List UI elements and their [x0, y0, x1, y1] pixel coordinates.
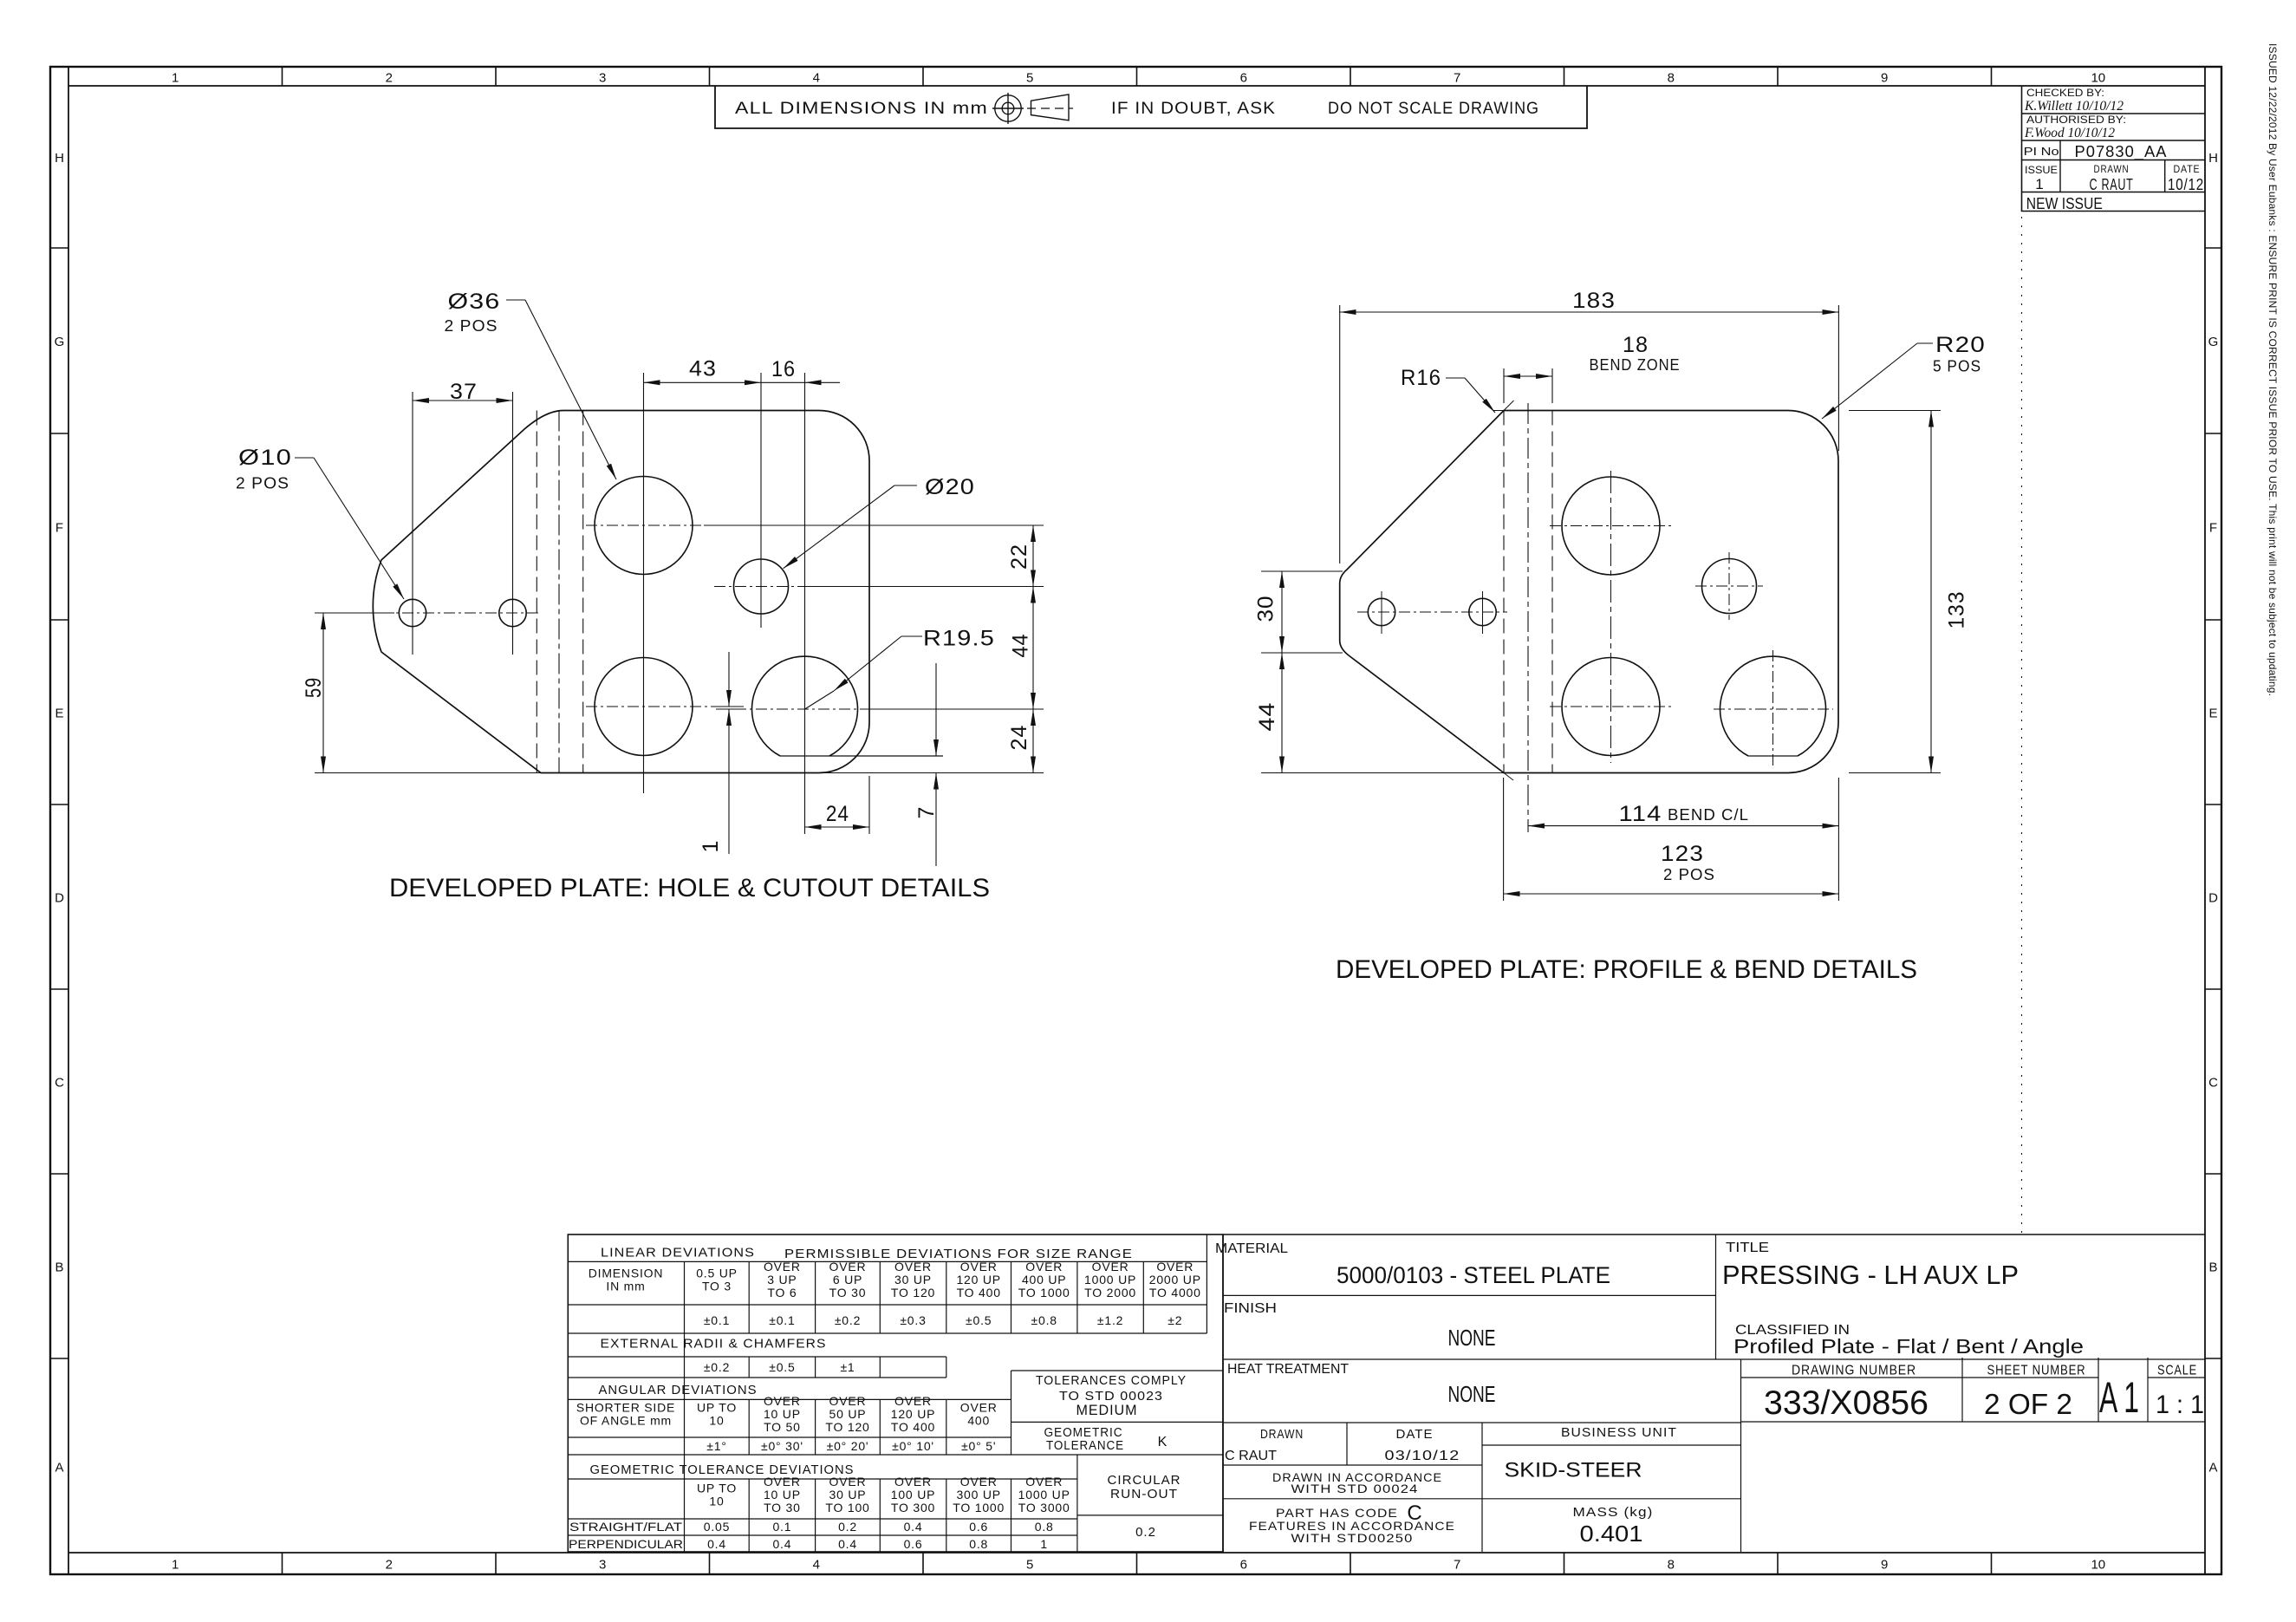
svg-text:H: H [55, 151, 64, 166]
svg-text:OVER: OVER [960, 1401, 998, 1415]
svg-text:NONE: NONE [1448, 1325, 1496, 1351]
svg-text:0.1: 0.1 [772, 1520, 791, 1534]
svg-text:CIRCULAR: CIRCULAR [1108, 1473, 1181, 1488]
svg-text:TOLERANCES COMPLY: TOLERANCES COMPLY [1036, 1373, 1187, 1388]
svg-text:0.4: 0.4 [772, 1537, 791, 1551]
svg-text:120 UP: 120 UP [891, 1407, 936, 1421]
svg-text:0.8: 0.8 [969, 1537, 988, 1551]
svg-text:G: G [2208, 335, 2219, 349]
svg-text:120 UP: 120 UP [956, 1273, 1001, 1287]
svg-text:SKID-STEER: SKID-STEER [1505, 1459, 1642, 1482]
svg-text:±0° 10': ±0° 10' [892, 1439, 934, 1453]
svg-text:D: D [2208, 891, 2218, 906]
svg-text:24: 24 [826, 802, 849, 826]
svg-text:133: 133 [1945, 591, 1969, 629]
svg-text:TO 120: TO 120 [891, 1286, 935, 1300]
svg-text:PERPENDICULAR: PERPENDICULAR [569, 1537, 683, 1551]
svg-text:10: 10 [709, 1495, 724, 1508]
svg-text:DATE: DATE [1396, 1427, 1434, 1442]
svg-text:TO 2000: TO 2000 [1084, 1286, 1136, 1300]
svg-text:PI No: PI No [2024, 145, 2059, 158]
svg-text:6: 6 [1240, 71, 1247, 86]
svg-text:6 UP: 6 UP [833, 1273, 862, 1287]
svg-text:LINEAR DEVIATIONS: LINEAR DEVIATIONS [601, 1246, 755, 1260]
svg-text:2 POS: 2 POS [445, 317, 498, 335]
svg-text:333/X0856: 333/X0856 [1764, 1384, 1929, 1422]
svg-text:TO 1000: TO 1000 [1018, 1286, 1070, 1300]
svg-text:IN mm: IN mm [606, 1280, 645, 1293]
svg-text:WITH STD 00024: WITH STD 00024 [1291, 1482, 1419, 1495]
svg-text:0.2: 0.2 [838, 1520, 857, 1534]
svg-text:18: 18 [1623, 333, 1649, 357]
svg-text:±0.3: ±0.3 [900, 1313, 926, 1327]
svg-text:OVER: OVER [829, 1394, 867, 1408]
svg-text:3 UP: 3 UP [767, 1273, 797, 1287]
svg-text:SHEET NUMBER: SHEET NUMBER [1987, 1364, 2086, 1378]
svg-text:7: 7 [1454, 71, 1460, 86]
svg-text:100 UP: 100 UP [891, 1488, 936, 1501]
svg-text:10 UP: 10 UP [764, 1488, 801, 1501]
svg-text:OF ANGLE mm: OF ANGLE mm [580, 1414, 672, 1428]
svg-text:3: 3 [599, 71, 606, 86]
svg-text:±0.8: ±0.8 [1031, 1313, 1057, 1327]
svg-text:CHECKED BY:: CHECKED BY: [2026, 87, 2104, 99]
svg-text:NEW ISSUE: NEW ISSUE [2026, 195, 2103, 212]
svg-text:TO 400: TO 400 [957, 1286, 1001, 1300]
svg-text:C: C [55, 1076, 64, 1091]
svg-text:Ø10: Ø10 [238, 446, 292, 470]
svg-text:D: D [55, 891, 64, 906]
svg-text:30: 30 [1254, 596, 1278, 622]
svg-text:5 POS: 5 POS [1933, 358, 1981, 375]
svg-text:SHORTER SIDE: SHORTER SIDE [576, 1401, 675, 1415]
svg-text:1: 1 [1040, 1537, 1048, 1551]
svg-text:4: 4 [813, 1558, 820, 1573]
svg-text:400: 400 [967, 1414, 990, 1428]
svg-text:A: A [2208, 1461, 2217, 1475]
svg-text:7: 7 [914, 806, 939, 819]
svg-text:0.2: 0.2 [1135, 1525, 1156, 1540]
svg-text:PRESSING - LH AUX LP: PRESSING - LH AUX LP [1722, 1260, 2019, 1290]
svg-text:16: 16 [771, 357, 796, 381]
svg-text:1: 1 [699, 840, 723, 853]
svg-text:1 : 1: 1 : 1 [2156, 1391, 2204, 1419]
svg-text:ISSUED 12/22/2012 By User Euba: ISSUED 12/22/2012 By User Eubanks : ENSU… [2267, 43, 2279, 696]
svg-text:30 UP: 30 UP [894, 1273, 932, 1287]
svg-text:10: 10 [2091, 71, 2105, 86]
svg-text:9: 9 [1881, 1558, 1888, 1573]
svg-text:OVER: OVER [894, 1394, 932, 1408]
svg-text:7: 7 [1454, 1558, 1460, 1573]
svg-text:±0° 30': ±0° 30' [761, 1439, 803, 1453]
svg-text:TO 30: TO 30 [829, 1286, 867, 1300]
svg-text:114: 114 [1619, 802, 1662, 826]
svg-text:TOLERANCE: TOLERANCE [1046, 1438, 1124, 1453]
svg-text:R19.5: R19.5 [923, 627, 995, 651]
svg-text:MATERIAL: MATERIAL [1215, 1241, 1288, 1256]
svg-text:MEDIUM: MEDIUM [1076, 1402, 1138, 1418]
svg-text:1: 1 [2035, 176, 2043, 192]
svg-text:TO 50: TO 50 [764, 1420, 801, 1434]
svg-text:A: A [55, 1461, 63, 1475]
svg-text:R20: R20 [1935, 333, 1986, 357]
svg-text:OVER: OVER [764, 1475, 801, 1488]
svg-text:22: 22 [1007, 544, 1031, 570]
svg-text:0.4: 0.4 [707, 1537, 726, 1551]
svg-text:DATE: DATE [2174, 163, 2201, 175]
svg-text:10: 10 [709, 1414, 724, 1428]
svg-text:183: 183 [1572, 289, 1616, 313]
svg-text:TO 1000: TO 1000 [953, 1501, 1005, 1515]
svg-text:10/12: 10/12 [2168, 176, 2204, 193]
svg-text:EXTERNAL RADII & CHAMFERS: EXTERNAL RADII & CHAMFERS [601, 1337, 827, 1352]
svg-text:BUSINESS UNIT: BUSINESS UNIT [1561, 1425, 1677, 1440]
svg-text:±0.1: ±0.1 [704, 1313, 730, 1327]
svg-text:±0.1: ±0.1 [769, 1313, 795, 1327]
svg-text:2 OF 2: 2 OF 2 [1984, 1388, 2072, 1420]
svg-text:B: B [55, 1260, 63, 1275]
svg-text:±0.2: ±0.2 [835, 1313, 861, 1327]
svg-text:8: 8 [1668, 71, 1675, 86]
svg-text:±0° 20': ±0° 20' [827, 1439, 869, 1453]
svg-text:10: 10 [2091, 1558, 2105, 1573]
svg-text:OVER: OVER [1025, 1475, 1063, 1488]
svg-text:4: 4 [813, 71, 820, 86]
svg-text:H: H [2208, 151, 2218, 166]
svg-text:±1°: ±1° [706, 1439, 726, 1453]
svg-text:HEAT TREATMENT: HEAT TREATMENT [1227, 1362, 1349, 1377]
svg-text:±1.2: ±1.2 [1097, 1313, 1123, 1327]
svg-text:1000 UP: 1000 UP [1084, 1273, 1136, 1287]
svg-text:OVER: OVER [1156, 1260, 1194, 1273]
svg-text:2 POS: 2 POS [236, 474, 289, 492]
svg-text:TO 400: TO 400 [891, 1420, 935, 1434]
svg-text:2: 2 [386, 1558, 393, 1573]
svg-text:TO 4000: TO 4000 [1149, 1286, 1201, 1300]
svg-text:GEOMETRIC TOLERANCE DEVIATIONS: GEOMETRIC TOLERANCE DEVIATIONS [590, 1462, 855, 1477]
svg-text:1000 UP: 1000 UP [1018, 1488, 1070, 1501]
svg-text:OVER: OVER [894, 1475, 932, 1488]
svg-text:C RAUT: C RAUT [1225, 1449, 1277, 1463]
svg-text:DO NOT SCALE DRAWING: DO NOT SCALE DRAWING [1328, 100, 1539, 118]
svg-text:OVER: OVER [764, 1394, 801, 1408]
svg-text:E: E [55, 707, 63, 721]
svg-text:±0.5: ±0.5 [769, 1360, 795, 1374]
svg-text:OVER: OVER [960, 1475, 998, 1488]
svg-text:TO 6: TO 6 [767, 1286, 797, 1300]
svg-text:44: 44 [1255, 702, 1279, 732]
svg-text:BEND ZONE: BEND ZONE [1590, 356, 1681, 374]
svg-text:TO 120: TO 120 [825, 1420, 869, 1434]
svg-text:0.401: 0.401 [1580, 1521, 1643, 1547]
svg-text:24: 24 [1007, 725, 1031, 751]
svg-text:R16: R16 [1401, 366, 1441, 390]
svg-text:0.4: 0.4 [904, 1520, 923, 1534]
svg-text:±1: ±1 [840, 1360, 855, 1374]
svg-text:2000 UP: 2000 UP [1149, 1273, 1201, 1287]
svg-text:TO 300: TO 300 [891, 1501, 935, 1515]
svg-text:DIMENSION: DIMENSION [589, 1267, 664, 1280]
svg-text:AUTHORISED BY:: AUTHORISED BY: [2026, 114, 2126, 126]
svg-text:0.6: 0.6 [969, 1520, 988, 1534]
svg-text:K.Willett 10/10/12: K.Willett 10/10/12 [2024, 99, 2124, 114]
svg-text:TO 100: TO 100 [825, 1501, 869, 1515]
svg-text:10 UP: 10 UP [764, 1407, 801, 1421]
svg-text:RUN-OUT: RUN-OUT [1110, 1487, 1178, 1501]
svg-text:NONE: NONE [1448, 1381, 1496, 1407]
svg-text:DEVELOPED PLATE: HOLE & CUTOUT: DEVELOPED PLATE: HOLE & CUTOUT DETAILS [389, 874, 990, 902]
svg-text:1: 1 [172, 71, 179, 86]
svg-text:WITH STD00250: WITH STD00250 [1291, 1531, 1414, 1545]
svg-text:OVER: OVER [1092, 1260, 1129, 1273]
svg-text:300 UP: 300 UP [956, 1488, 1001, 1501]
svg-text:E: E [2208, 707, 2217, 721]
svg-text:±0.2: ±0.2 [704, 1360, 730, 1374]
svg-text:2 POS: 2 POS [1663, 866, 1715, 883]
svg-text:TO 3000: TO 3000 [1018, 1501, 1070, 1515]
svg-text:PART HAS CODE: PART HAS CODE [1276, 1506, 1398, 1520]
svg-text:0.05: 0.05 [704, 1520, 730, 1534]
svg-text:P07830_AA: P07830_AA [2075, 143, 2168, 161]
svg-text:9: 9 [1881, 71, 1888, 86]
svg-text:IF IN DOUBT, ASK: IF IN DOUBT, ASK [1111, 100, 1276, 118]
svg-text:37: 37 [450, 380, 478, 404]
svg-text:F: F [2209, 521, 2217, 536]
svg-text:03/10/12: 03/10/12 [1385, 1449, 1460, 1463]
svg-text:59: 59 [302, 677, 326, 698]
svg-text:Ø20: Ø20 [925, 475, 975, 499]
svg-text:UP TO: UP TO [697, 1401, 737, 1415]
svg-text:DEVELOPED PLATE: PROFILE & BEN: DEVELOPED PLATE: PROFILE & BEND DETAILS [1336, 955, 1917, 984]
svg-text:K: K [1158, 1435, 1168, 1449]
svg-text:DRAWING NUMBER: DRAWING NUMBER [1792, 1364, 1916, 1378]
svg-text:±0.5: ±0.5 [966, 1313, 992, 1327]
svg-text:SCALE: SCALE [2157, 1364, 2197, 1378]
svg-text:30 UP: 30 UP [829, 1488, 867, 1501]
svg-text:5000/0103 - STEEL PLATE: 5000/0103 - STEEL PLATE [1337, 1262, 1610, 1288]
svg-text:C RAUT: C RAUT [2090, 176, 2134, 193]
svg-text:TO 3: TO 3 [702, 1280, 732, 1293]
svg-text:±2: ±2 [1168, 1313, 1182, 1327]
svg-text:Profiled Plate - Flat / Bent /: Profiled Plate - Flat / Bent / Angle [1733, 1335, 2084, 1358]
svg-text:FINISH: FINISH [1224, 1301, 1277, 1316]
svg-text:OVER: OVER [894, 1260, 932, 1273]
svg-text:OVER: OVER [764, 1260, 801, 1273]
svg-text:MASS (kg): MASS (kg) [1573, 1505, 1654, 1520]
svg-text:BEND C/L: BEND C/L [1668, 806, 1749, 824]
svg-text:TO 30: TO 30 [764, 1501, 801, 1515]
svg-text:5: 5 [1026, 1558, 1033, 1573]
svg-text:F.Wood 10/10/12: F.Wood 10/10/12 [2024, 126, 2115, 140]
svg-text:OVER: OVER [960, 1260, 998, 1273]
svg-text:0.8: 0.8 [1035, 1520, 1054, 1534]
svg-text:C: C [2208, 1076, 2218, 1091]
svg-text:STRAIGHT/FLAT: STRAIGHT/FLAT [569, 1520, 683, 1534]
svg-text:8: 8 [1668, 1558, 1675, 1573]
svg-text:3: 3 [599, 1558, 606, 1573]
svg-text:G: G [55, 335, 65, 349]
svg-text:F: F [55, 521, 63, 536]
svg-text:DRAWN: DRAWN [1260, 1427, 1304, 1442]
svg-text:0.4: 0.4 [838, 1537, 857, 1551]
svg-text:1: 1 [172, 1558, 179, 1573]
svg-text:50 UP: 50 UP [829, 1407, 867, 1421]
svg-text:6: 6 [1240, 1558, 1247, 1573]
svg-text:B: B [2208, 1260, 2217, 1275]
svg-text:ANGULAR DEVIATIONS: ANGULAR DEVIATIONS [599, 1383, 758, 1397]
svg-text:OVER: OVER [829, 1475, 867, 1488]
svg-text:0.6: 0.6 [904, 1537, 923, 1551]
svg-text:ALL DIMENSIONS IN mm: ALL DIMENSIONS IN mm [735, 100, 988, 118]
svg-text:0.5 UP: 0.5 UP [696, 1267, 738, 1280]
svg-text:OVER: OVER [1025, 1260, 1063, 1273]
svg-text:2: 2 [386, 71, 393, 86]
svg-text:TITLE: TITLE [1726, 1241, 1769, 1255]
svg-text:123: 123 [1661, 842, 1704, 866]
svg-text:400 UP: 400 UP [1022, 1273, 1067, 1287]
svg-text:Ø36: Ø36 [448, 290, 501, 314]
svg-text:43: 43 [689, 357, 717, 381]
svg-text:±0° 5': ±0° 5' [961, 1439, 996, 1453]
svg-text:A 1: A 1 [2099, 1373, 2139, 1422]
svg-text:UP TO: UP TO [697, 1482, 737, 1495]
svg-text:44: 44 [1009, 634, 1033, 658]
svg-text:ISSUE: ISSUE [2025, 164, 2058, 176]
svg-text:OVER: OVER [829, 1260, 867, 1273]
svg-text:DRAWN: DRAWN [2094, 163, 2130, 175]
svg-text:5: 5 [1026, 71, 1033, 86]
